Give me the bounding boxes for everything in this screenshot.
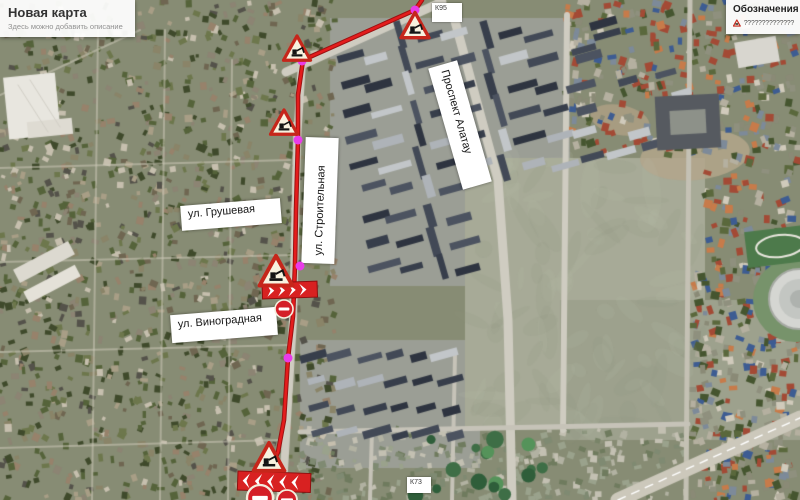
- map-marker-label-k95[interactable]: К95: [432, 3, 462, 22]
- map-description-placeholder: Здесь можно добавить описание: [8, 22, 123, 31]
- legend-title: Обозначения: [733, 4, 794, 15]
- map-marker-label-k73[interactable]: К73: [407, 477, 431, 493]
- legend-card[interactable]: Обозначения ??????????????: [726, 0, 800, 34]
- map-title: Новая карта: [8, 5, 123, 20]
- street-label-stroitelnaya[interactable]: ул. Строительная: [301, 137, 338, 264]
- map-title-card[interactable]: Новая карта Здесь можно добавить описани…: [0, 0, 135, 37]
- legend-item[interactable]: ??????????????: [733, 18, 794, 28]
- legend-item-label: ??????????????: [744, 20, 794, 27]
- satellite-map[interactable]: [0, 0, 800, 500]
- roadwork-legend-icon: [733, 18, 741, 28]
- app-window: ул. Грушевая ул. Виноградная ул. Строите…: [0, 0, 800, 500]
